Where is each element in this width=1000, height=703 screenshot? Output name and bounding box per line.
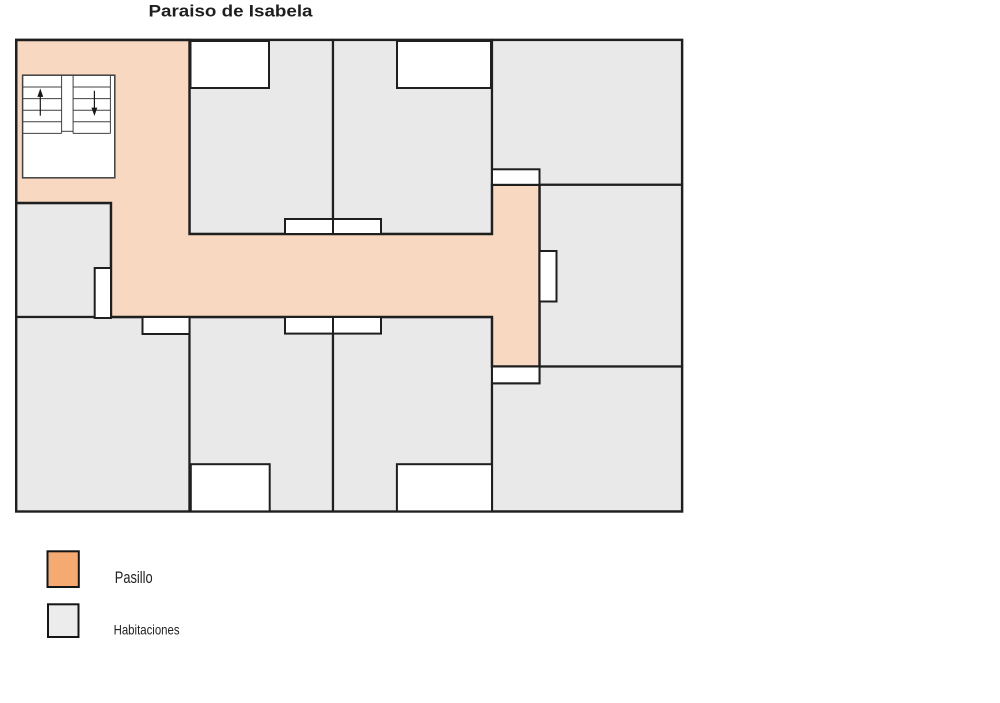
svg-text:Paraiso de Isabela: Paraiso de Isabela bbox=[149, 2, 314, 21]
svg-text:Pasillo: Pasillo bbox=[115, 568, 153, 587]
svg-text:Habitaciones: Habitaciones bbox=[114, 622, 180, 637]
